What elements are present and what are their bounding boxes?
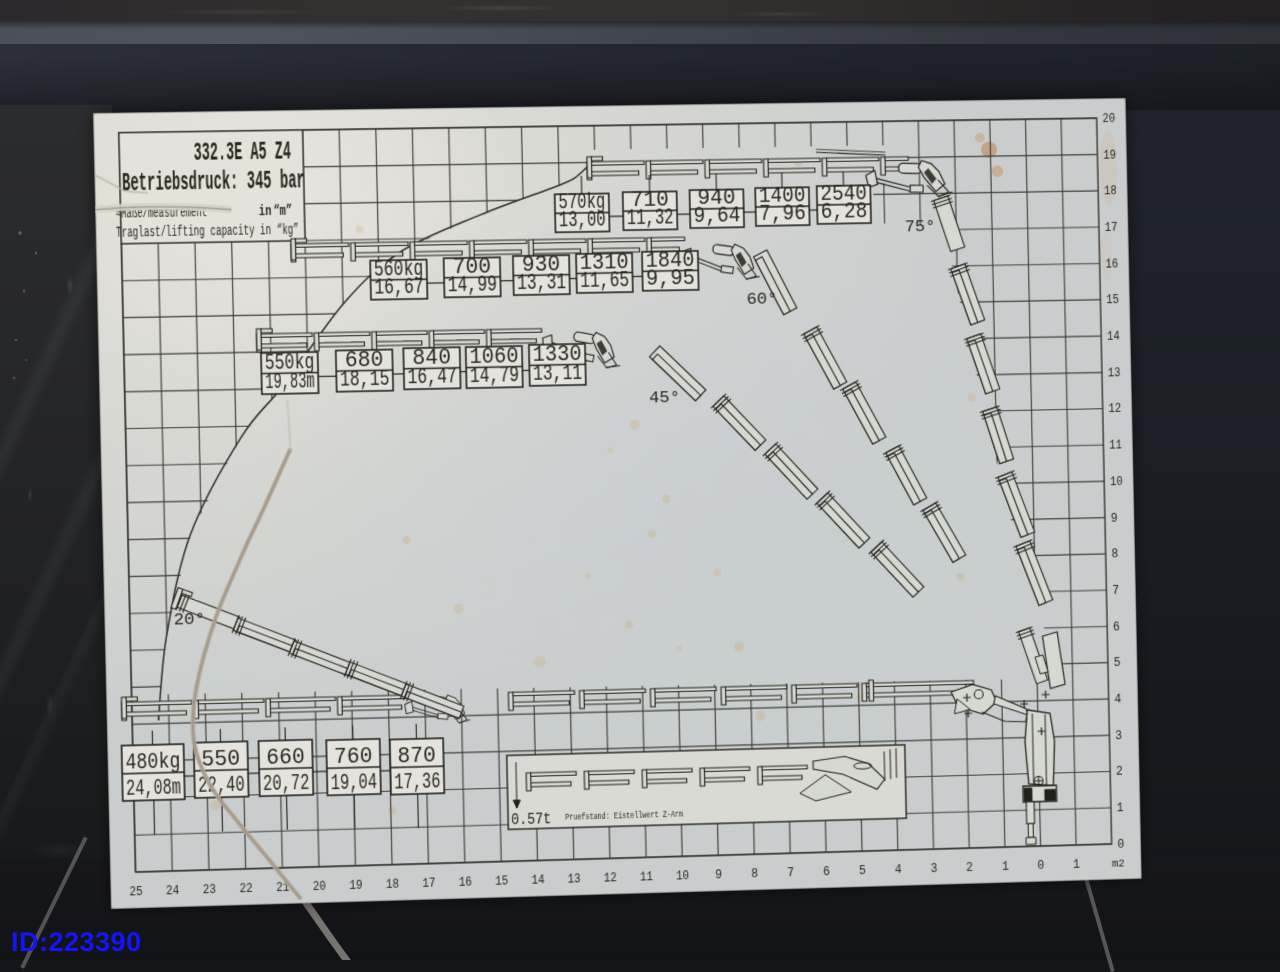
- svg-text:3: 3: [1115, 728, 1122, 743]
- svg-text:17: 17: [1105, 220, 1118, 235]
- svg-text:5: 5: [859, 863, 866, 878]
- svg-text:m2: m2: [1112, 859, 1125, 871]
- svg-text:Traglast/lifting capacity in “: Traglast/lifting capacity in “kg”: [116, 223, 299, 242]
- svg-text:20,72: 20,72: [263, 771, 310, 798]
- svg-text:6: 6: [823, 864, 830, 879]
- svg-text:5: 5: [1114, 656, 1121, 671]
- svg-text:13: 13: [567, 871, 580, 886]
- svg-text:480kg: 480kg: [125, 749, 180, 776]
- svg-text:15: 15: [495, 874, 508, 889]
- svg-text:3: 3: [930, 861, 937, 876]
- svg-text:332.3E A5 Z4: 332.3E A5 Z4: [193, 138, 291, 168]
- svg-text:1: 1: [1117, 801, 1124, 816]
- svg-text:660: 660: [266, 745, 305, 772]
- svg-text:24: 24: [166, 883, 180, 898]
- svg-text:18: 18: [386, 877, 399, 892]
- svg-text:16,47: 16,47: [407, 364, 457, 391]
- svg-text:870: 870: [397, 743, 436, 770]
- svg-text:23: 23: [203, 882, 217, 897]
- svg-text:0.57t: 0.57t: [511, 810, 551, 830]
- svg-text:4: 4: [895, 862, 902, 877]
- svg-text:11,32: 11,32: [626, 205, 673, 231]
- svg-text:7: 7: [787, 865, 794, 880]
- svg-text:14,99: 14,99: [447, 272, 497, 299]
- svg-text:19: 19: [349, 878, 362, 893]
- svg-text:7: 7: [1112, 583, 1119, 598]
- svg-text:9,64: 9,64: [693, 203, 740, 229]
- svg-text:16: 16: [1105, 256, 1118, 271]
- svg-text:16: 16: [459, 875, 472, 890]
- svg-text:60°: 60°: [746, 291, 777, 310]
- svg-text:13,11: 13,11: [533, 361, 583, 388]
- svg-text:9: 9: [1111, 511, 1118, 526]
- svg-text:1: 1: [1073, 857, 1080, 872]
- svg-text:12: 12: [1108, 402, 1121, 417]
- svg-text:19: 19: [1103, 147, 1116, 162]
- svg-text:25: 25: [129, 884, 143, 899]
- svg-text:11: 11: [640, 869, 653, 884]
- svg-text:17,36: 17,36: [394, 769, 441, 796]
- svg-text:16,67: 16,67: [374, 274, 424, 301]
- svg-text:760: 760: [334, 744, 373, 771]
- svg-text:18,15: 18,15: [340, 366, 390, 393]
- svg-text:22: 22: [239, 881, 252, 896]
- svg-text:14: 14: [531, 873, 544, 888]
- svg-text:4: 4: [1114, 692, 1121, 707]
- svg-text:45°: 45°: [649, 389, 680, 408]
- svg-text:0: 0: [1037, 858, 1044, 873]
- svg-text:19,04: 19,04: [330, 770, 377, 797]
- svg-text:550: 550: [201, 746, 240, 773]
- svg-text:20°: 20°: [173, 611, 205, 631]
- svg-text:20: 20: [1102, 111, 1115, 126]
- svg-text:0: 0: [1117, 837, 1124, 852]
- svg-text:2: 2: [1116, 764, 1123, 779]
- svg-text:19,83m: 19,83m: [265, 369, 315, 396]
- svg-text:8: 8: [1111, 547, 1118, 562]
- svg-text:14,79: 14,79: [470, 363, 520, 390]
- svg-text:13: 13: [1108, 365, 1121, 380]
- svg-text:13,31: 13,31: [517, 270, 567, 296]
- svg-text:9: 9: [715, 867, 722, 882]
- svg-text:24,08m: 24,08m: [126, 775, 181, 802]
- svg-text:6: 6: [1113, 619, 1120, 634]
- svg-text:9,95: 9,95: [646, 266, 695, 292]
- svg-text:8: 8: [751, 866, 758, 881]
- svg-text:2: 2: [966, 860, 973, 875]
- svg-text:18: 18: [1104, 184, 1117, 199]
- svg-text:17: 17: [422, 876, 435, 891]
- svg-text:11: 11: [1109, 438, 1122, 453]
- svg-text:10: 10: [676, 868, 689, 883]
- svg-text:15: 15: [1106, 293, 1119, 308]
- svg-text:12: 12: [604, 870, 617, 885]
- svg-text:1: 1: [1002, 859, 1009, 874]
- svg-text:11,65: 11,65: [580, 268, 630, 294]
- svg-text:75°: 75°: [905, 218, 936, 237]
- svg-text:13,00: 13,00: [558, 207, 606, 233]
- svg-text:Betriebsdruck: 345 bar: Betriebsdruck: 345 bar: [122, 167, 305, 199]
- svg-text:10: 10: [1110, 474, 1123, 489]
- svg-text:6,28: 6,28: [820, 199, 867, 225]
- svg-text:in “m”: in “m”: [259, 204, 293, 220]
- svg-text:20: 20: [313, 879, 327, 894]
- svg-text:7,96: 7,96: [759, 201, 806, 227]
- svg-text:14: 14: [1107, 329, 1120, 344]
